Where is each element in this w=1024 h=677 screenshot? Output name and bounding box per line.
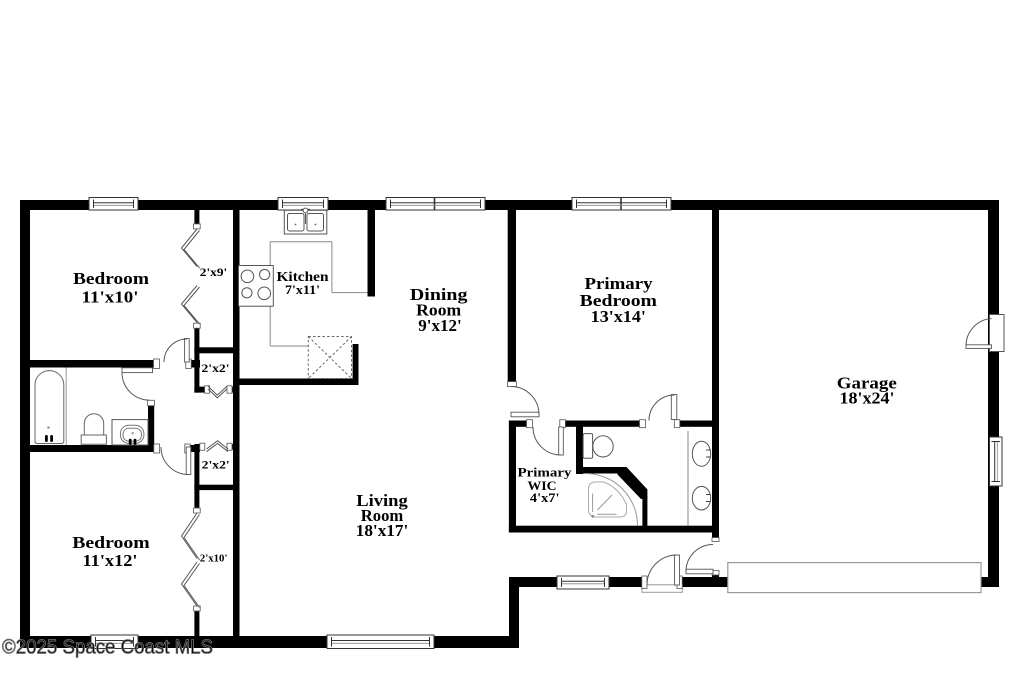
svg-text:9'x12': 9'x12' (418, 316, 462, 335)
svg-text:Bedroom: Bedroom (73, 269, 149, 288)
svg-text:18'x17': 18'x17' (356, 521, 409, 540)
svg-text:11'x10': 11'x10' (82, 288, 139, 307)
svg-text:11'x12': 11'x12' (83, 551, 138, 570)
svg-text:2'x9': 2'x9' (200, 267, 228, 279)
svg-text:4'x7': 4'x7' (530, 490, 560, 505)
svg-text:2'x10': 2'x10' (200, 554, 228, 565)
svg-text:2'x2': 2'x2' (202, 363, 230, 375)
svg-text:7'x11': 7'x11' (285, 282, 320, 297)
svg-text:18'x24': 18'x24' (840, 389, 895, 408)
svg-text:©2025 Space Coast MLS: ©2025 Space Coast MLS (2, 637, 213, 659)
svg-text:Bedroom: Bedroom (72, 533, 150, 552)
svg-text:13'x14': 13'x14' (591, 307, 646, 326)
svg-text:2'x2': 2'x2' (202, 460, 230, 472)
